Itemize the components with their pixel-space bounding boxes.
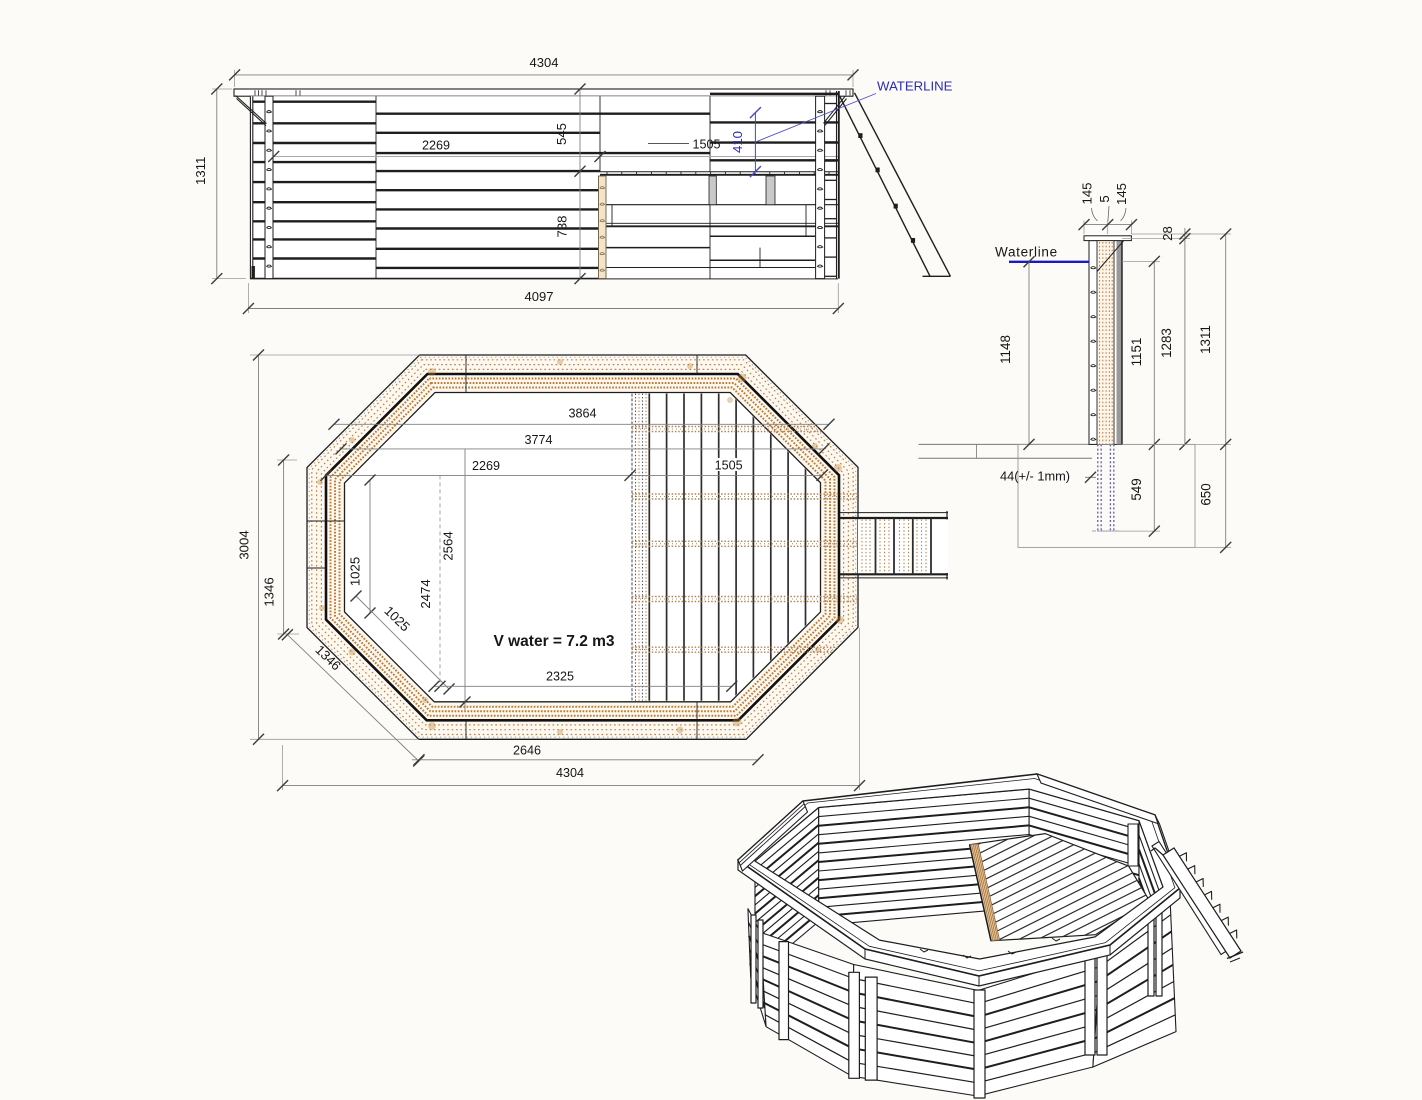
svg-text:2269: 2269 — [422, 139, 450, 153]
svg-text:V water = 7.2 m3: V water = 7.2 m3 — [493, 633, 614, 650]
svg-text:1148: 1148 — [998, 335, 1013, 364]
svg-text:3004: 3004 — [237, 530, 252, 559]
svg-text:4304: 4304 — [556, 766, 584, 780]
svg-text:738: 738 — [555, 215, 570, 237]
svg-text:2269: 2269 — [472, 459, 500, 473]
svg-text:545: 545 — [554, 123, 569, 145]
svg-text:1505: 1505 — [692, 138, 720, 152]
svg-text:1025: 1025 — [348, 557, 363, 586]
svg-text:Waterline: Waterline — [995, 245, 1058, 260]
svg-text:1346: 1346 — [262, 577, 277, 606]
svg-text:1311: 1311 — [1198, 325, 1213, 354]
svg-text:WATERLINE: WATERLINE — [877, 79, 953, 94]
svg-text:3864: 3864 — [568, 407, 596, 421]
svg-text:4304: 4304 — [530, 55, 559, 70]
svg-text:1151: 1151 — [1129, 338, 1144, 367]
svg-text:1283: 1283 — [1159, 328, 1174, 358]
svg-text:2564: 2564 — [441, 531, 456, 560]
svg-text:5: 5 — [1097, 195, 1112, 202]
svg-text:1505: 1505 — [715, 458, 743, 472]
svg-text:2646: 2646 — [513, 744, 541, 758]
svg-text:650: 650 — [1199, 483, 1214, 505]
svg-text:410: 410 — [730, 131, 745, 153]
svg-text:4097: 4097 — [525, 289, 554, 304]
svg-text:145: 145 — [1080, 182, 1095, 204]
svg-text:3774: 3774 — [524, 433, 552, 447]
svg-text:44(+/- 1mm): 44(+/- 1mm) — [1000, 469, 1070, 484]
svg-text:549: 549 — [1129, 478, 1144, 500]
svg-text:28: 28 — [1160, 226, 1175, 241]
svg-text:145: 145 — [1114, 183, 1129, 205]
svg-text:2325: 2325 — [546, 670, 574, 684]
svg-text:2474: 2474 — [418, 579, 433, 608]
svg-text:1311: 1311 — [193, 157, 208, 185]
